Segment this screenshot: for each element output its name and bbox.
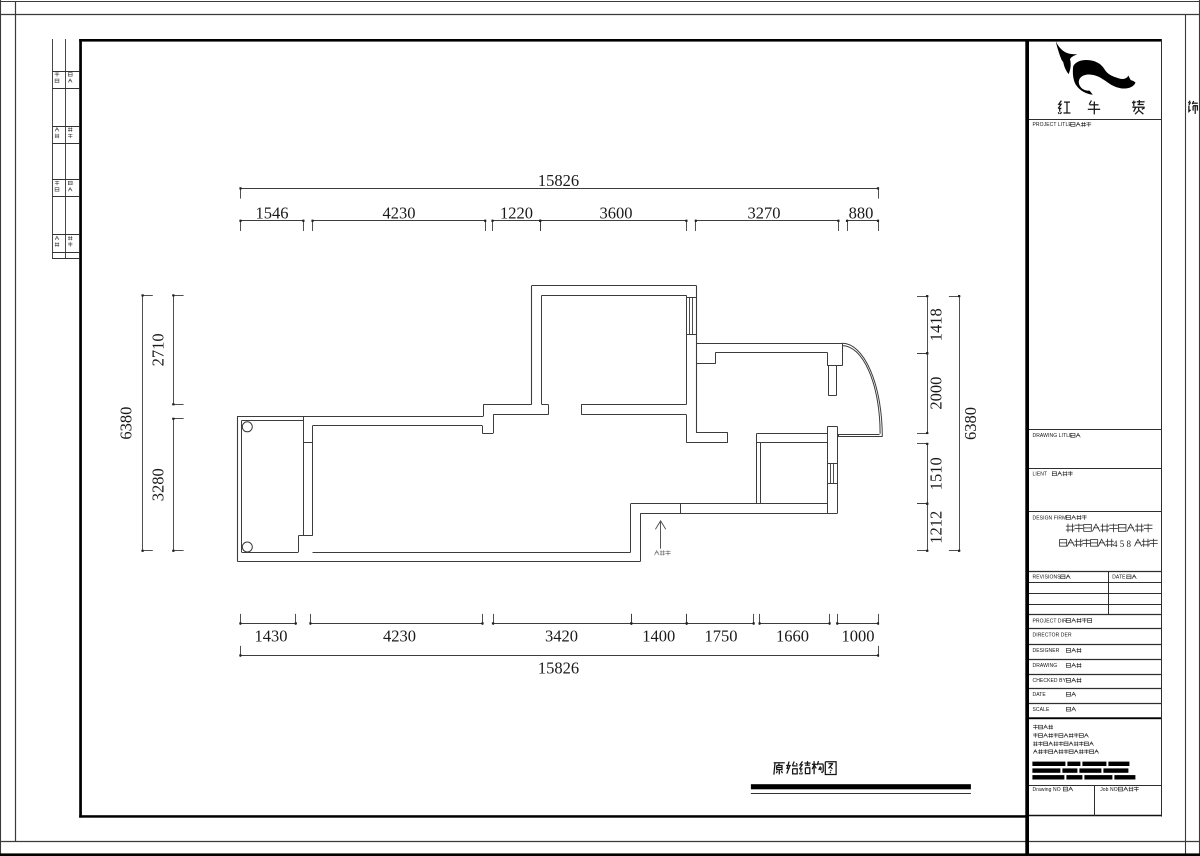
svg-text:3270: 3270 bbox=[748, 203, 781, 222]
svg-text:DATE: DATE bbox=[1112, 575, 1126, 581]
svg-text:Drawing NO: Drawing NO bbox=[1033, 787, 1061, 793]
svg-text:4230: 4230 bbox=[383, 203, 416, 222]
svg-text:6380: 6380 bbox=[117, 407, 136, 440]
svg-text:1418: 1418 bbox=[927, 308, 946, 341]
svg-text:3600: 3600 bbox=[600, 203, 633, 222]
svg-text:SCALE: SCALE bbox=[1033, 707, 1050, 713]
svg-text:15826: 15826 bbox=[538, 171, 579, 190]
svg-text:1212: 1212 bbox=[927, 511, 946, 544]
svg-text:1546: 1546 bbox=[256, 203, 289, 222]
svg-text:CHECKED BY: CHECKED BY bbox=[1033, 678, 1067, 684]
svg-text:DRAWING: DRAWING bbox=[1033, 663, 1058, 669]
svg-text:DRAWING LITLE: DRAWING LITLE bbox=[1033, 433, 1074, 439]
svg-text:15826: 15826 bbox=[538, 659, 579, 678]
svg-text:4230: 4230 bbox=[383, 627, 416, 646]
svg-text:6380: 6380 bbox=[961, 407, 980, 440]
svg-text:DATE: DATE bbox=[1033, 692, 1047, 698]
svg-text:1510: 1510 bbox=[927, 457, 946, 490]
svg-text:1660: 1660 bbox=[776, 627, 809, 646]
svg-text:PROJECT LITLE: PROJECT LITLE bbox=[1033, 122, 1073, 128]
svg-text:REVISIONS: REVISIONS bbox=[1033, 575, 1062, 581]
svg-text:Job NO: Job NO bbox=[1100, 787, 1118, 793]
svg-text:3420: 3420 bbox=[545, 627, 578, 646]
svg-text:4 5 8: 4 5 8 bbox=[1113, 539, 1132, 549]
svg-text:DESIGNER: DESIGNER bbox=[1033, 648, 1060, 654]
svg-text:1750: 1750 bbox=[705, 627, 738, 646]
svg-text:2000: 2000 bbox=[927, 377, 946, 410]
svg-text:PROJECT DIR: PROJECT DIR bbox=[1033, 618, 1068, 624]
svg-text:1430: 1430 bbox=[255, 627, 288, 646]
svg-text:2710: 2710 bbox=[149, 333, 168, 366]
svg-text:LIENT: LIENT bbox=[1033, 472, 1048, 478]
svg-text:DESIGN FIRM: DESIGN FIRM bbox=[1033, 515, 1067, 521]
svg-text:DIRECTOR DER: DIRECTOR DER bbox=[1033, 632, 1072, 638]
svg-text:3280: 3280 bbox=[149, 468, 168, 501]
svg-text:1000: 1000 bbox=[842, 627, 875, 646]
svg-text:880: 880 bbox=[849, 203, 874, 222]
svg-text:1400: 1400 bbox=[642, 627, 675, 646]
svg-text:1220: 1220 bbox=[500, 203, 533, 222]
